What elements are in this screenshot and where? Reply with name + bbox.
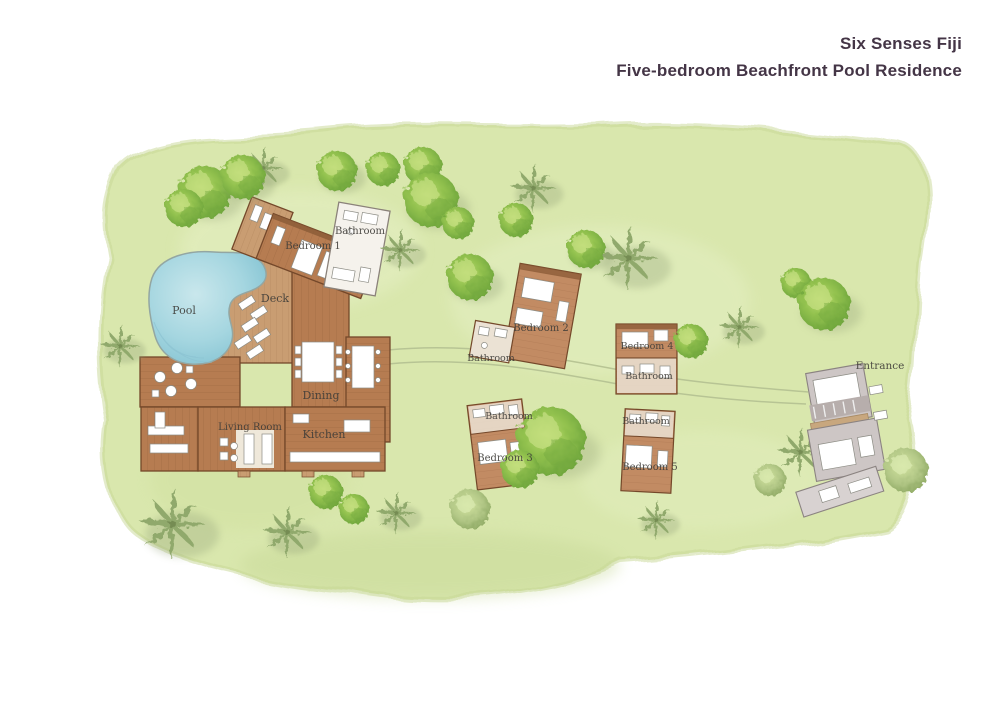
label-deck: Deck xyxy=(261,292,289,305)
label-living-room: Living Room xyxy=(218,422,282,433)
tree-bush xyxy=(567,230,605,268)
label-bathroom-1: Bathroom xyxy=(335,226,386,237)
label-bedroom-1: Bedroom 1 xyxy=(285,241,341,252)
label-bathroom-3: Bathroom xyxy=(485,411,533,422)
label-bedroom-4: Bedroom 4 xyxy=(621,341,674,352)
page-subtitle: Five-bedroom Beachfront Pool Residence xyxy=(616,57,962,84)
pale-tree xyxy=(450,489,490,529)
tree-bush xyxy=(165,189,203,227)
tree-bush xyxy=(674,324,708,358)
page: Pool Deck Bedroom 1 Bathroom Living Room… xyxy=(0,0,1000,707)
tree-bush xyxy=(309,475,343,509)
label-pool: Pool xyxy=(172,304,196,317)
dining-wing xyxy=(292,272,349,407)
tree-bush xyxy=(366,152,400,186)
tree-bush xyxy=(339,494,369,524)
label-bedroom-5: Bedroom 5 xyxy=(622,462,678,473)
label-bathroom-2: Bathroom xyxy=(467,353,515,364)
label-bathroom-4: Bathroom xyxy=(625,371,673,382)
tree-bush xyxy=(447,254,493,300)
site-plan: Pool Deck Bedroom 1 Bathroom Living Room… xyxy=(0,0,1000,707)
tree-bush xyxy=(317,151,357,191)
tree-bush xyxy=(798,278,850,330)
label-bedroom-3: Bedroom 3 xyxy=(477,453,533,464)
page-header: Six Senses Fiji Five-bedroom Beachfront … xyxy=(616,30,962,84)
pale-tree xyxy=(754,464,786,496)
bedroom-4-pavilion xyxy=(616,324,677,394)
label-entrance: Entrance xyxy=(856,360,905,372)
label-kitchen: Kitchen xyxy=(303,428,346,441)
brand-title: Six Senses Fiji xyxy=(616,30,962,57)
tree-bush xyxy=(221,155,265,199)
tree-bush xyxy=(499,203,533,237)
label-dining: Dining xyxy=(302,389,339,402)
pale-tree xyxy=(884,448,928,492)
west-wing xyxy=(141,407,198,471)
label-bathroom-5: Bathroom xyxy=(622,416,670,427)
tree-bush xyxy=(442,207,474,239)
label-bedroom-2: Bedroom 2 xyxy=(513,323,569,334)
